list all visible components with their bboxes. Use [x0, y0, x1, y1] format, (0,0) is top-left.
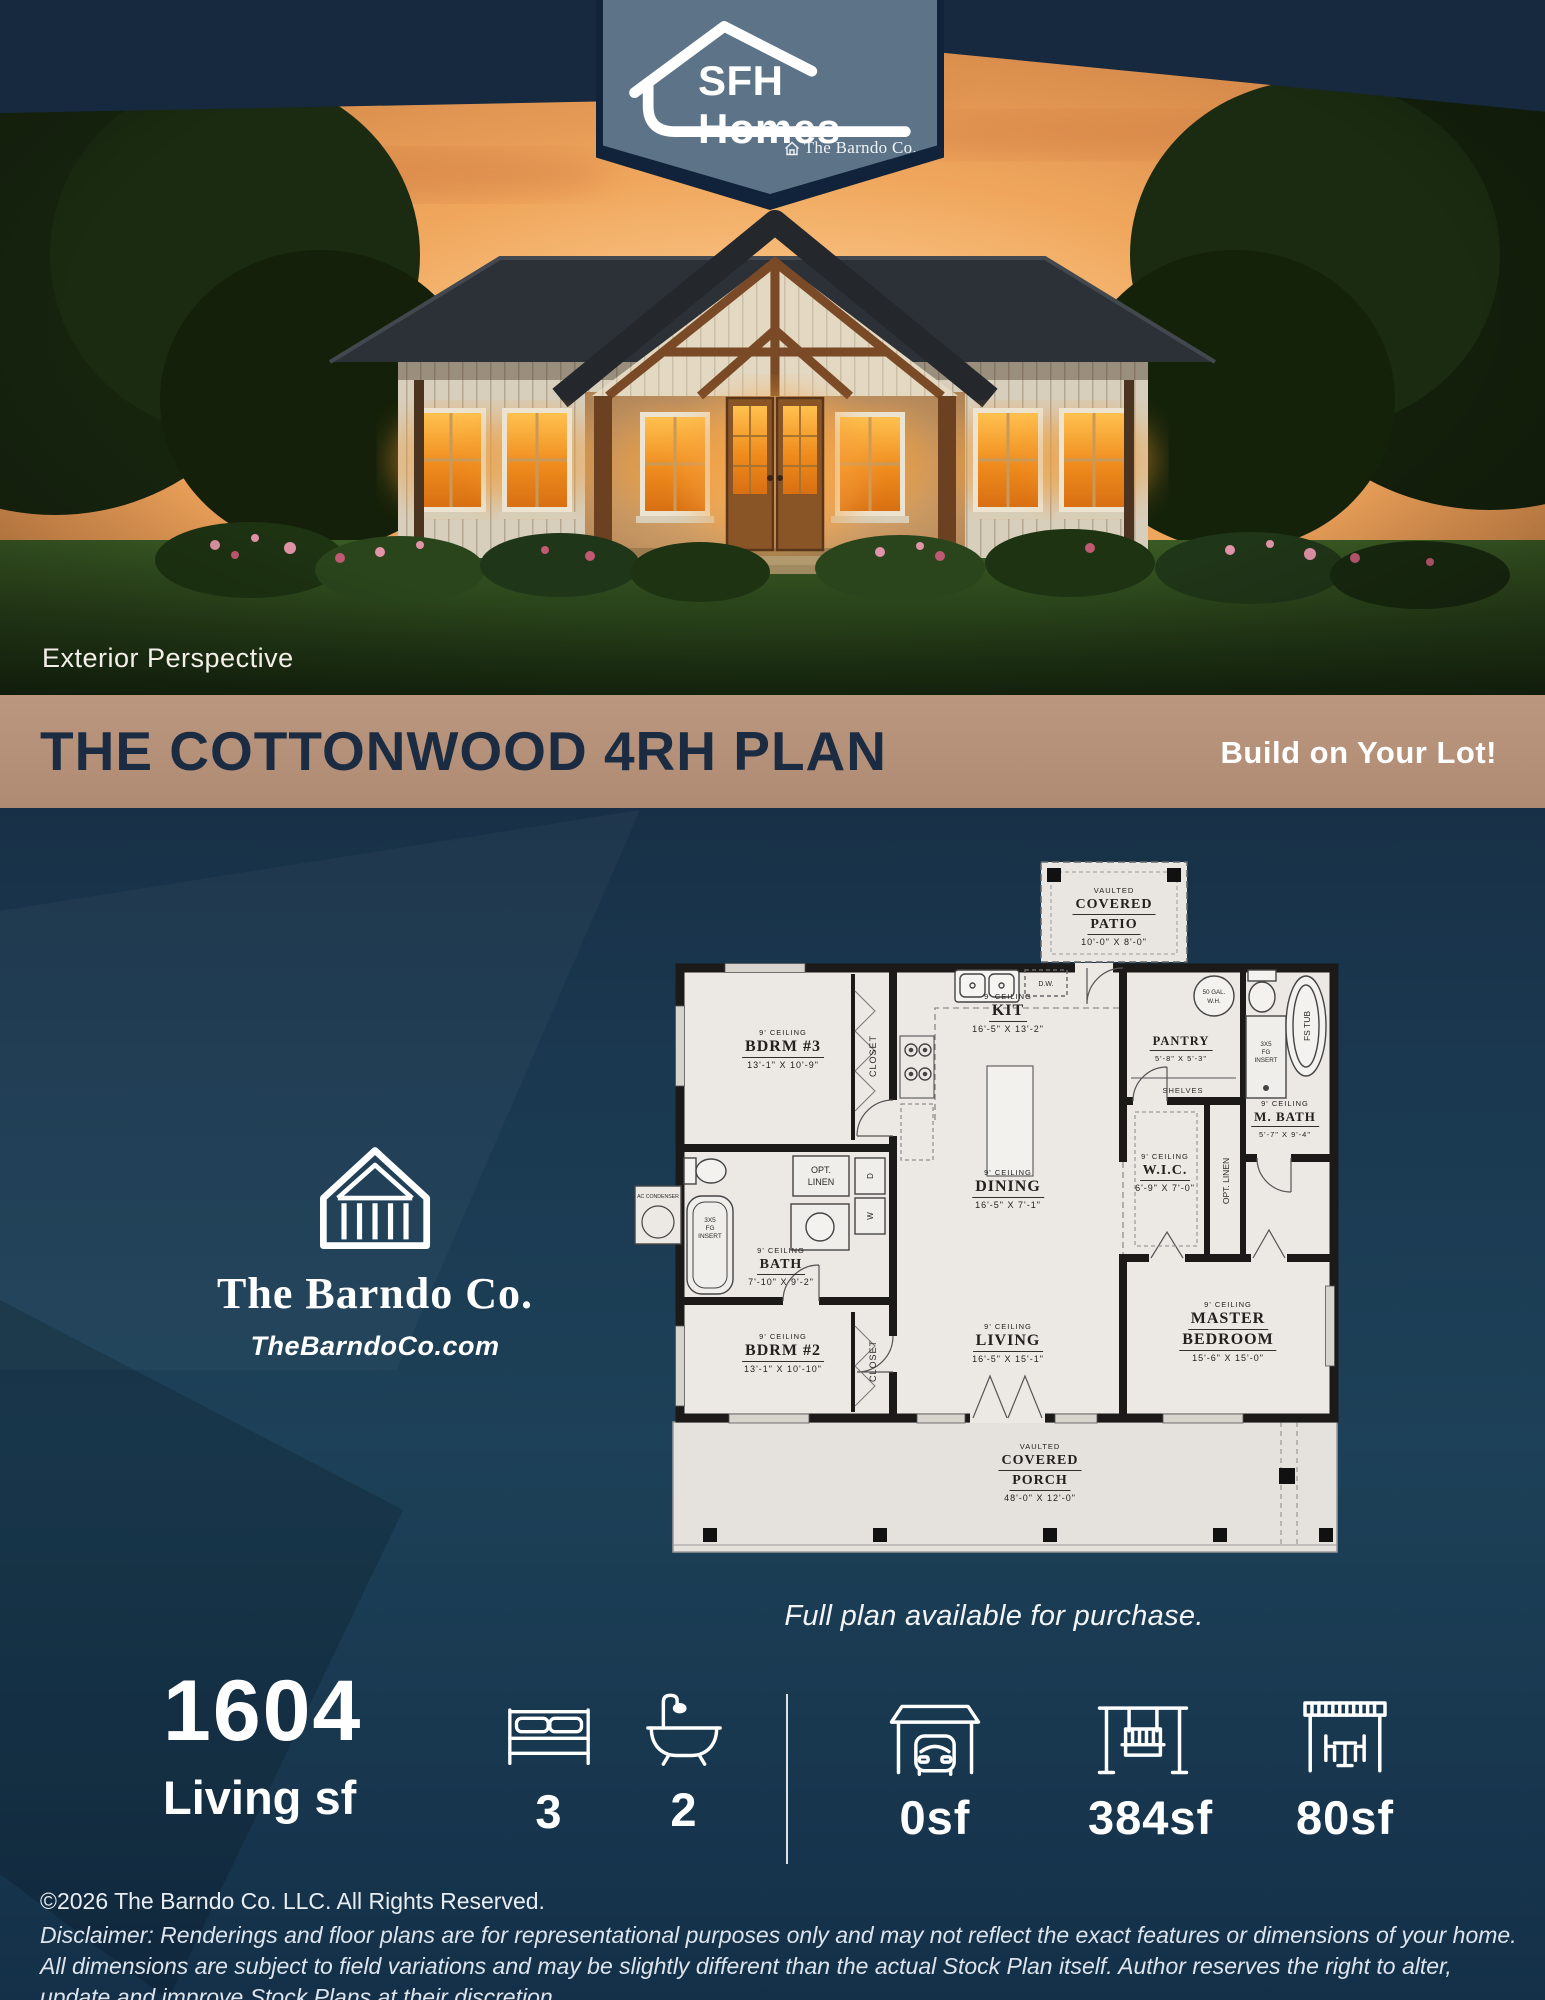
tub-insert-label-1: 3X5 — [704, 1217, 716, 1224]
mshower-label-2: FG — [1262, 1049, 1271, 1056]
opt-linen-label-2: LINEN — [808, 1177, 835, 1187]
bath-icon — [641, 1688, 727, 1768]
copyright: ©2026 The Barndo Co. LLC. All Rights Res… — [40, 1888, 545, 1915]
room-label-dining: 9' CEILING DINING 16'-5" X 7'-1" — [972, 1168, 1044, 1212]
mshower-label-1: 3X5 — [1260, 1041, 1272, 1048]
patio-sf: 80sf — [1290, 1790, 1400, 1845]
floor-plan: CLOSET CLOSET D.W. 50 GAL. W.H. SHELVES … — [633, 856, 1355, 1571]
brand-block-name: The Barndo Co. — [217, 1268, 533, 1319]
opt-linen-vertical-label: OPT. LINEN — [1221, 1158, 1231, 1204]
bedrooms-count: 3 — [494, 1784, 604, 1839]
room-label-wic: 9' CEILING W.I.C. 6'-9" X 7'-0" — [1135, 1152, 1195, 1195]
dishwasher-label: D.W. — [1038, 981, 1053, 988]
closet-label-bdrm3: CLOSET — [868, 1035, 878, 1077]
living-sf-value: 1604 — [163, 1668, 362, 1754]
brand-website-link[interactable]: TheBarndoCo.com — [217, 1331, 533, 1362]
room-label-master-bath: 9' CEILING M. BATH 5'-7" X 9'-4" — [1251, 1099, 1319, 1141]
room-label-patio: VAULTED COVERED PATIO 10'-0" X 8'-0" — [1072, 886, 1155, 949]
plan-title: THE COTTONWOOD 4RH PLAN — [40, 719, 887, 783]
porch-swing-icon — [1097, 1696, 1189, 1776]
room-label-bdrm2: 9' CEILING BDRM #2 13'-1" X 10'-10" — [742, 1332, 824, 1376]
brand-block: The Barndo Co. TheBarndoCo.com — [217, 1138, 533, 1362]
build-on-your-lot-label: Build on Your Lot! — [1221, 735, 1497, 771]
stat-bathrooms: 2 — [636, 1688, 732, 1837]
room-label-master-bedroom: 9' CEILING MASTER BEDROOM 15'-6" X 15'-0… — [1179, 1300, 1276, 1365]
room-label-kitchen: 9' CEILING KIT 16'-5" X 13'-2" — [972, 992, 1044, 1036]
plan-caption: Full plan available for purchase. — [784, 1600, 1203, 1633]
freestanding-tub-label: FS TUB — [1302, 1011, 1312, 1041]
ac-condenser-label: AC CONDENSER — [637, 1194, 679, 1200]
stat-patio: 80sf — [1290, 1696, 1400, 1845]
water-heater-label-1: 50 GAL. — [1203, 989, 1226, 996]
barndo-mini-house-icon — [784, 141, 800, 156]
flyer-page: Exterior Perspective SFH Homes The Barnd… — [0, 0, 1545, 2000]
disclaimer: Disclaimer: Renderings and floor plans a… — [40, 1920, 1522, 2000]
tub-insert-label-2: FG — [705, 1225, 714, 1232]
stat-garage: 0sf — [880, 1696, 990, 1845]
stat-porch: 384sf — [1088, 1696, 1198, 1845]
stat-living-sf: 1604 Living sf — [163, 1668, 362, 1825]
patio-pergola-icon — [1298, 1696, 1392, 1776]
room-label-pantry: PANTRY 5'-8" X 5'-3" — [1150, 1032, 1213, 1065]
washer-label: W — [866, 1212, 875, 1220]
stats-divider — [786, 1694, 788, 1864]
closet-label-bdrm2: CLOSET — [868, 1340, 878, 1382]
living-sf-label: Living sf — [163, 1770, 362, 1825]
tub-insert-label-3: INSERT — [698, 1233, 722, 1240]
stat-bedrooms: 3 — [494, 1700, 604, 1839]
room-label-porch: VAULTED COVERED PORCH 48'-0" X 12'-0" — [998, 1442, 1081, 1505]
bathrooms-count: 2 — [636, 1782, 732, 1837]
garage-sf: 0sf — [880, 1790, 990, 1845]
photo-caption: Exterior Perspective — [42, 643, 294, 674]
opt-linen-label-1: OPT. — [811, 1165, 831, 1175]
carport-icon — [889, 1696, 981, 1776]
sub-brand: The Barndo Co. — [784, 138, 917, 158]
sub-brand-label: The Barndo Co. — [804, 138, 917, 158]
porch-sf: 384sf — [1088, 1790, 1198, 1845]
room-label-living: 9' CEILING LIVING 16'-5" X 15'-1" — [972, 1322, 1044, 1366]
shelves-label: SHELVES — [1162, 1086, 1203, 1095]
mshower-label-3: INSERT — [1255, 1057, 1278, 1064]
water-heater-label-2: W.H. — [1207, 998, 1221, 1005]
bed-icon — [501, 1700, 597, 1770]
floor-plan-drawing: CLOSET CLOSET D.W. 50 GAL. W.H. SHELVES … — [633, 856, 1355, 1571]
room-label-bdrm3: 9' CEILING BDRM #3 13'-1" X 10'-9" — [742, 1028, 824, 1072]
title-banner: THE COTTONWOOD 4RH PLAN Build on Your Lo… — [0, 695, 1545, 808]
room-label-bath: 9' CEILING BATH 7'-10" X 9'-2" — [748, 1246, 814, 1289]
barndo-house-icon — [313, 1138, 437, 1254]
dryer-label: D — [866, 1173, 875, 1179]
